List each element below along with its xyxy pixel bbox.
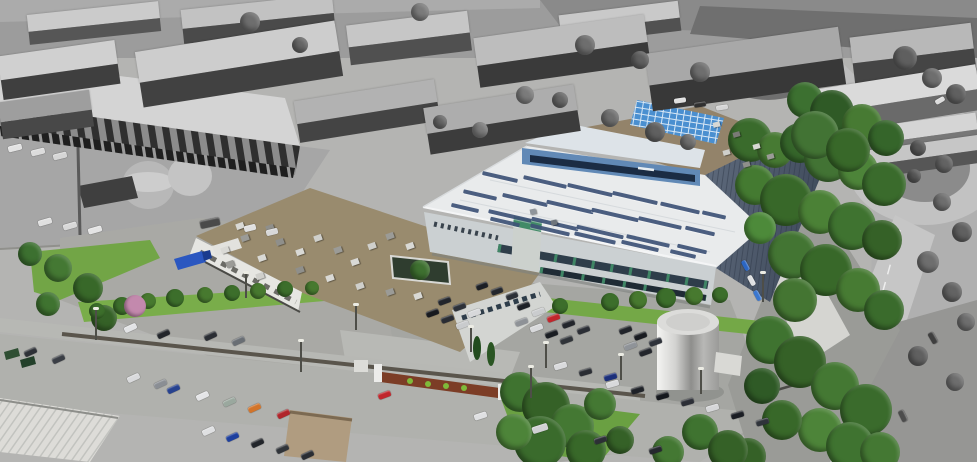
car [531, 307, 545, 317]
car [276, 409, 290, 420]
solar-strip [482, 171, 518, 183]
street-lamp [545, 344, 547, 368]
tree [773, 278, 817, 322]
solar-strip [685, 226, 715, 237]
roof-vent [732, 131, 740, 138]
tree [516, 86, 534, 104]
roof-vent [766, 153, 774, 160]
car [222, 397, 236, 408]
street-lamp [470, 328, 472, 352]
car [30, 147, 45, 156]
car [52, 151, 67, 160]
car [37, 217, 52, 227]
car [740, 259, 750, 271]
solar-strip [546, 200, 594, 215]
roof-vent [385, 232, 395, 240]
tree [744, 212, 776, 244]
solar-strip [567, 183, 613, 197]
car [705, 403, 719, 412]
bush [166, 289, 184, 307]
bush [277, 281, 293, 297]
car [195, 391, 209, 402]
bush [656, 288, 676, 308]
tree [496, 414, 532, 450]
solar-strip [660, 202, 700, 215]
car [300, 450, 314, 461]
bush [552, 298, 568, 314]
gray-warehouse [27, 1, 161, 45]
car [529, 323, 543, 333]
bush [629, 291, 647, 309]
tree [942, 282, 962, 302]
tree [946, 373, 964, 391]
aerial-photo [0, 0, 977, 462]
solar-strip [591, 208, 639, 223]
roof-vent [722, 149, 730, 156]
bush [250, 283, 266, 299]
roof-vent [413, 292, 423, 300]
car [243, 224, 256, 233]
tree [893, 46, 917, 70]
roof-vent [295, 248, 305, 256]
bush [124, 295, 146, 317]
gray-warehouse [0, 40, 120, 100]
tree [410, 260, 430, 280]
car [730, 410, 744, 419]
tree [240, 12, 260, 32]
car [898, 409, 909, 422]
tree [18, 242, 42, 266]
car [576, 325, 590, 335]
solar-strip [451, 203, 479, 213]
car [23, 347, 37, 358]
tree [411, 3, 429, 21]
car [674, 97, 687, 104]
car [377, 390, 391, 400]
car [51, 354, 65, 365]
car [231, 336, 245, 347]
tree [908, 346, 928, 366]
tree [862, 162, 906, 206]
car [505, 291, 518, 301]
tree [922, 68, 942, 88]
roof-vent [333, 246, 343, 254]
gray-warehouse [346, 11, 472, 66]
roof-vent [257, 254, 267, 262]
tree [868, 120, 904, 156]
car [126, 373, 140, 384]
solar-strip [702, 210, 726, 219]
car [203, 331, 217, 342]
car [680, 397, 694, 406]
tree [910, 140, 926, 156]
tree [957, 313, 975, 331]
roof-vent [225, 260, 235, 268]
car [561, 319, 575, 329]
tree [933, 193, 951, 211]
car [623, 341, 637, 351]
car [559, 335, 573, 345]
bush [89, 303, 105, 319]
tree [601, 109, 619, 127]
car [618, 325, 632, 335]
solar-strip [612, 191, 658, 205]
street-lamp [355, 306, 357, 330]
roof-vent [220, 246, 230, 254]
tree [862, 220, 902, 260]
car [166, 384, 180, 395]
car [638, 347, 652, 357]
roof-vent [405, 242, 415, 250]
car [7, 143, 22, 152]
car [927, 331, 938, 344]
roof-vent [313, 234, 323, 242]
tree [552, 92, 568, 108]
car [716, 104, 729, 111]
car [746, 274, 756, 286]
tree [690, 62, 710, 82]
tree [864, 290, 904, 330]
car [516, 301, 530, 311]
gray-warehouse [294, 79, 441, 143]
car [199, 217, 220, 229]
bush [197, 287, 213, 303]
car [87, 225, 102, 235]
tree [645, 122, 665, 142]
tree [708, 430, 748, 462]
car [553, 361, 567, 370]
tree [631, 51, 649, 69]
roof-vent [275, 238, 285, 246]
car [578, 367, 592, 376]
objects-layer [0, 0, 977, 462]
roof-vent [350, 258, 360, 266]
roof-vent [551, 219, 558, 225]
car [425, 308, 439, 318]
roof-vent [742, 161, 750, 168]
car [648, 337, 662, 347]
car [62, 221, 77, 231]
tree [433, 115, 447, 129]
tree [744, 368, 780, 404]
tree [826, 128, 870, 172]
street-lamp [700, 370, 702, 394]
roof-vent [325, 274, 335, 282]
car [467, 308, 481, 318]
solar-strip [502, 193, 548, 207]
car [156, 329, 170, 340]
roof-vent [712, 121, 720, 128]
bush [712, 287, 728, 303]
car [225, 432, 239, 443]
car [630, 385, 644, 394]
tree [73, 273, 103, 303]
roof-vent [255, 272, 265, 280]
car [247, 403, 261, 414]
car [201, 426, 215, 437]
roof-vent [752, 143, 760, 150]
solar-strip [463, 189, 497, 201]
car [440, 314, 454, 324]
street-lamp [530, 368, 532, 398]
car [475, 281, 488, 291]
gray-warehouse [473, 14, 650, 87]
car [452, 302, 466, 312]
bush [685, 287, 703, 305]
car [546, 313, 560, 323]
tree [292, 37, 308, 53]
car [437, 296, 451, 306]
tree [584, 388, 616, 420]
car [655, 391, 669, 400]
car [153, 379, 167, 390]
tree [860, 432, 900, 462]
bush [305, 281, 319, 295]
car [694, 101, 707, 108]
car [514, 317, 528, 327]
tree [36, 292, 60, 316]
roof-vent [367, 242, 377, 250]
roof-vent [355, 282, 365, 290]
car [265, 228, 278, 237]
car [275, 444, 289, 455]
car [250, 438, 264, 449]
car [490, 286, 503, 296]
roof-vent [295, 266, 305, 274]
bush [224, 285, 240, 301]
solar-strip [523, 175, 567, 189]
tree [917, 251, 939, 273]
tree [935, 155, 953, 173]
car [544, 329, 558, 339]
roof-vent [240, 234, 250, 242]
street-lamp [95, 310, 97, 340]
solar-strip [638, 216, 682, 230]
roof-vent [530, 208, 537, 214]
bush [601, 293, 619, 311]
street-lamp [245, 274, 247, 298]
tree [907, 169, 921, 183]
car [455, 320, 469, 330]
tree [606, 426, 634, 454]
street-lamp [300, 342, 302, 372]
tree [566, 430, 606, 462]
tree [946, 84, 966, 104]
street-lamp [620, 356, 622, 380]
tree [575, 35, 595, 55]
car [633, 331, 647, 341]
roof-vent [385, 288, 395, 296]
car [752, 289, 762, 301]
tree [44, 254, 72, 282]
car [123, 323, 137, 334]
street-lamp [762, 274, 764, 302]
tree [680, 134, 696, 150]
tree [952, 222, 972, 242]
car [473, 411, 487, 421]
tree [472, 122, 488, 138]
